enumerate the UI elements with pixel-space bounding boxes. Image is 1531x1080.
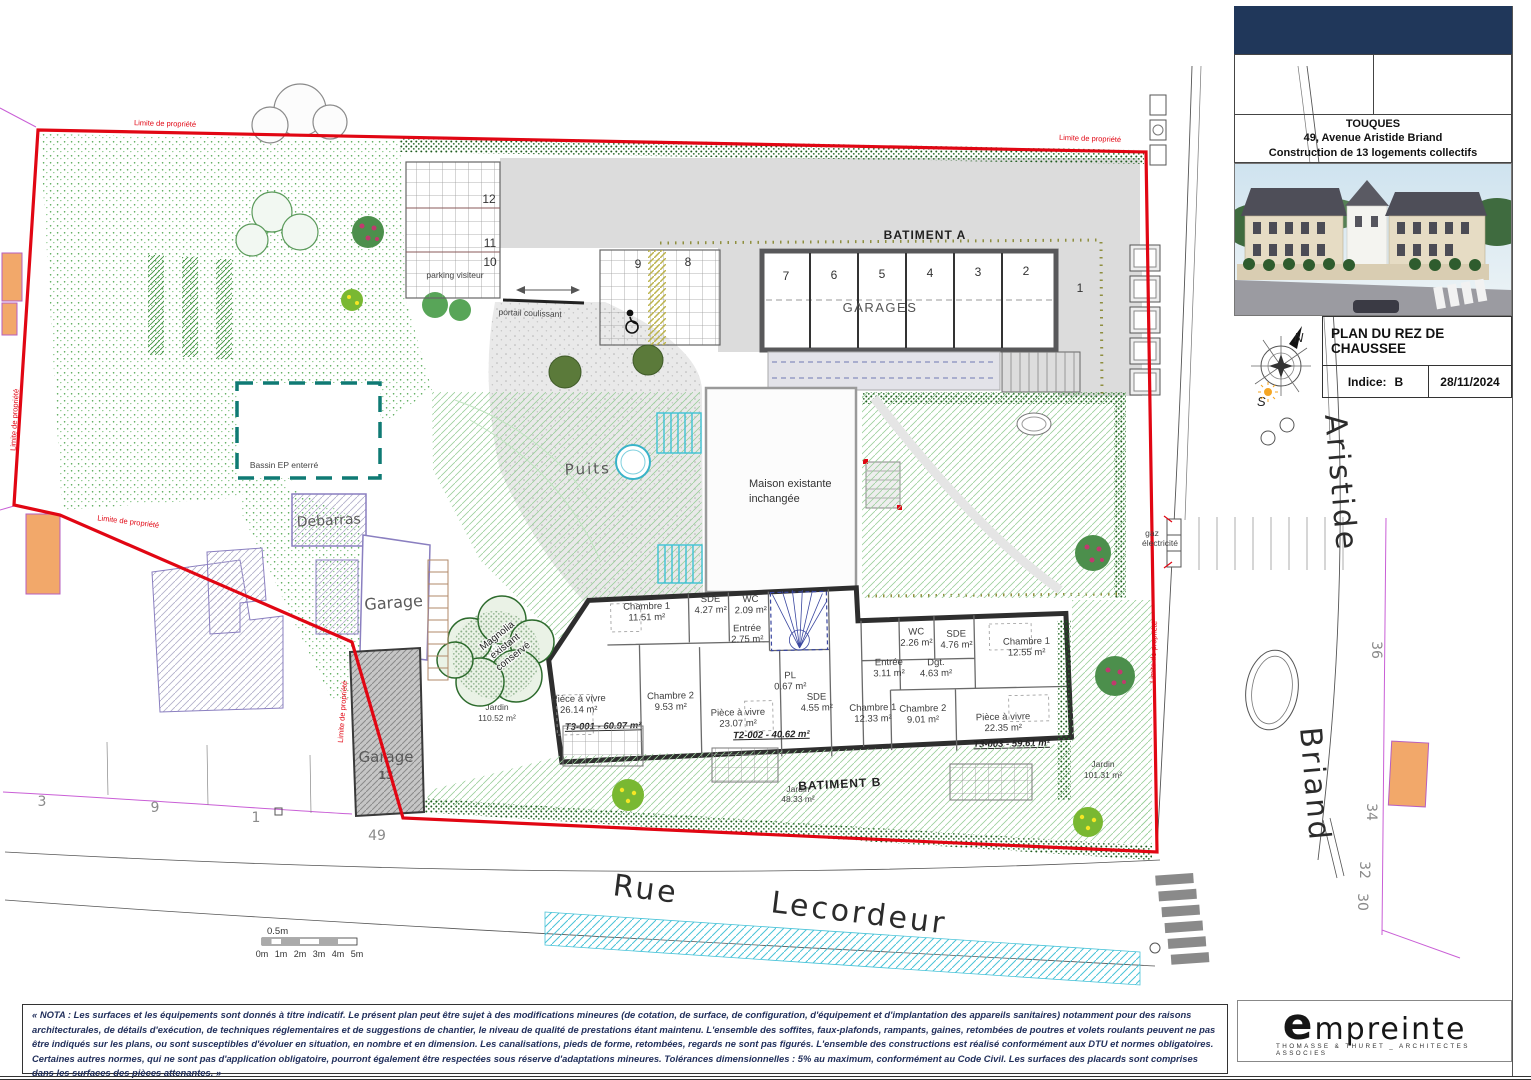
room-area: 2.75 m²	[731, 634, 763, 646]
room-area: 22.35 m²	[984, 722, 1022, 734]
curb-line	[5, 852, 1160, 871]
room-name: Entrée	[875, 657, 903, 669]
indice-value: B	[1395, 375, 1404, 389]
limite-label: Limite de propriété	[1148, 621, 1159, 683]
utility-cabinets	[1150, 95, 1166, 165]
compass-south-label: S	[1257, 394, 1266, 409]
house-number: 9	[151, 800, 160, 816]
titleblock-cells	[1234, 54, 1512, 115]
traffic-island	[1241, 647, 1304, 733]
flowering-tree	[1075, 535, 1111, 571]
room-name: Entrée	[733, 623, 761, 635]
room-area: 9.53 m²	[655, 701, 687, 713]
driveway	[718, 248, 760, 352]
house-number: 34	[1363, 803, 1379, 821]
room-area: 4.55 m²	[801, 702, 833, 714]
project-description: Construction de 13 logements collectifs	[1235, 146, 1511, 160]
garage-stall-number: 3	[975, 265, 982, 279]
garage-stall-number: 5	[879, 267, 886, 281]
room-area: 2.26 m²	[900, 637, 932, 649]
neighbour-building	[26, 514, 60, 594]
photo-rendering	[1234, 163, 1512, 316]
batiment-a-label: BATIMENT A	[884, 228, 967, 242]
scale-tick: 2m	[294, 949, 307, 959]
planting-row	[182, 257, 198, 357]
sheet-border-right	[1512, 6, 1513, 1076]
stairs-a	[1002, 352, 1080, 392]
scale-tick: 4m	[332, 949, 345, 959]
neighbour-building	[1388, 741, 1428, 807]
cadastre-line	[3, 792, 352, 814]
bush	[449, 299, 471, 321]
compass-rose: N S	[1238, 318, 1324, 414]
debarras-label: Debarras	[296, 511, 361, 530]
room-name: Chambre 2	[647, 690, 694, 702]
garage-building-white: Garage	[360, 535, 430, 660]
jardin-area: 48.33 m²	[781, 794, 815, 804]
planter-boxes	[1130, 245, 1160, 395]
yellow-bush	[341, 289, 363, 311]
photo-rendering-art	[1235, 164, 1511, 315]
tree	[633, 345, 663, 375]
parking-spot-number: 12	[482, 192, 496, 206]
flowering-tree	[1095, 656, 1135, 696]
neighbour-building	[2, 253, 22, 301]
jardin-label: Jardin	[1091, 759, 1114, 769]
gaz-label: gaz	[1145, 528, 1159, 538]
room-name: Pièce à vivre	[976, 711, 1031, 723]
yellow-bush	[612, 779, 644, 811]
house-number: 30	[1354, 893, 1370, 911]
garage-stall-number: 4	[927, 266, 934, 280]
room-area: 0.67 m²	[774, 681, 806, 693]
terrace-a	[768, 352, 1000, 390]
garage-stall-number: 2	[1023, 264, 1030, 278]
planting-row	[216, 259, 232, 359]
curb-line	[1157, 66, 1192, 848]
manhole	[1261, 431, 1275, 445]
apartment-id: T2-002 - 40.62 m²	[733, 729, 811, 742]
pedestrian-crossing	[1155, 872, 1209, 965]
room-name: Pièce à vivre	[551, 693, 606, 705]
bassin-ep: Bassin EP enterré	[237, 383, 380, 478]
room-area: 3.11 m²	[873, 668, 905, 680]
room-area: 9.01 m²	[907, 714, 939, 726]
logo-name: empreinte	[1283, 1005, 1467, 1045]
indice-label: Indice:	[1348, 375, 1387, 389]
scale-tick: 3m	[313, 949, 326, 959]
room-name: SDE	[701, 594, 721, 605]
driveway	[500, 158, 1140, 248]
logo-tagline: THOMASSE & THURET _ ARCHITECTES ASSOCIES	[1276, 1043, 1511, 1057]
house-number: 32	[1356, 861, 1372, 879]
sun-icon	[1264, 388, 1272, 396]
titleblock-banner	[1234, 6, 1512, 54]
room-area: 23.07 m²	[719, 718, 757, 730]
house-number: 36	[1368, 641, 1384, 659]
parking-visiteur-label: parking visiteur	[426, 270, 483, 280]
house-number: 1	[252, 810, 261, 826]
room-area: 4.76 m²	[940, 639, 972, 651]
scale-bar: 0.5m 0m 1m 2m 3m 4m 5m	[256, 926, 364, 959]
project-info: TOUQUES 49, Avenue Aristide Briand Const…	[1234, 115, 1512, 163]
parcel-ticks	[107, 742, 311, 813]
neighbour-annex	[316, 560, 358, 634]
maison-label-1: Maison existante	[749, 478, 832, 490]
parking-spot-number: 9	[635, 257, 642, 271]
room-area: 26.14 m²	[560, 704, 598, 716]
garage-stall-number: 6	[831, 268, 838, 282]
street-name-rue: Rue	[611, 868, 681, 911]
titleblock-cell-left	[1235, 55, 1374, 114]
curb-line	[1185, 66, 1201, 520]
room-name: Pièce à vivre	[711, 707, 766, 719]
room-name: WC	[908, 626, 924, 637]
cadastre-line	[1382, 518, 1460, 958]
parking-entry-block: 9 8	[600, 250, 720, 345]
garden-right	[862, 392, 1126, 598]
room-area: 12.33 m²	[854, 713, 892, 725]
architect-logo: empreinte THOMASSE & THURET _ ARCHITECTE…	[1237, 1000, 1512, 1062]
manhole	[1150, 943, 1160, 953]
debarras-building: Debarras	[292, 494, 366, 546]
terrace	[950, 764, 1032, 800]
utility-meters: gaz électricité	[1142, 516, 1181, 568]
room-area: 11.51 m²	[628, 612, 665, 624]
titleblock-meta: Indice: B 28/11/2024	[1322, 366, 1512, 398]
scale-half-label: 0.5m	[267, 926, 288, 937]
titleblock-cell-right	[1374, 55, 1512, 114]
parking-spot-number: 8	[685, 255, 692, 269]
yellow-bush	[1073, 807, 1103, 837]
project-address: 49, Avenue Aristide Briand	[1235, 131, 1511, 145]
tree	[549, 356, 581, 388]
neighbour-building	[2, 303, 17, 335]
street-name-aristide: Aristide	[1317, 413, 1364, 554]
room-name: SDE	[807, 691, 827, 702]
compass-north-label: N	[1294, 330, 1304, 345]
parking-spot-number: 1	[1077, 281, 1084, 295]
limite-label: Limite de propriété	[134, 118, 196, 129]
puits-label: Puits	[564, 459, 611, 479]
parking-bay-stripes	[1199, 517, 1343, 570]
bassin-label: Bassin EP enterré	[250, 460, 319, 470]
room-area: 4.27 m²	[695, 605, 727, 617]
parking-spot-number: 11	[484, 236, 497, 250]
nota-text: « NOTA : Les surfaces et les équipements…	[22, 1004, 1228, 1074]
parking-spot-number: 10	[483, 255, 497, 269]
sheet-border-bottom	[0, 1076, 1531, 1080]
maison-label-2: inchangée	[749, 493, 800, 505]
house-number: 3	[38, 794, 47, 810]
indice-cell: Indice: B	[1322, 366, 1428, 398]
room-area: 2.09 m²	[735, 605, 767, 617]
hedge	[1057, 620, 1071, 800]
scale-tick: 1m	[275, 949, 288, 959]
terrace	[712, 748, 778, 782]
planting-row	[148, 255, 164, 355]
garages-label: GARAGES	[843, 300, 918, 315]
terrace	[563, 726, 643, 766]
electricite-label: électricité	[1142, 538, 1178, 548]
room-name: WC	[742, 594, 758, 605]
flowering-tree	[352, 216, 384, 248]
limite-label: Limite de propriété	[1059, 133, 1121, 144]
date-cell: 28/11/2024	[1428, 366, 1512, 398]
room-name: PL	[784, 670, 796, 681]
room-name: SDE	[946, 629, 966, 640]
jardin-area: 110.52 m²	[478, 713, 516, 723]
garage-stall-number: 7	[783, 269, 790, 283]
room-name: Chambre 2	[899, 703, 946, 715]
jardin-area: 101.31 m²	[1084, 770, 1122, 780]
maison-existante: Maison existante inchangée	[706, 388, 856, 592]
manhole	[1280, 418, 1294, 432]
plan-title: PLAN DU REZ DE CHAUSSEE	[1322, 316, 1512, 366]
scale-tick: 5m	[351, 949, 364, 959]
scale-tick: 0m	[256, 949, 269, 959]
project-city: TOUQUES	[1235, 117, 1511, 131]
house-number: 49	[368, 828, 386, 844]
room-area: 12.55 m²	[1008, 647, 1046, 659]
limite-label: Limite de propriété	[97, 513, 160, 530]
room-name: Dgt.	[927, 657, 945, 668]
room-area: 4.63 m²	[920, 668, 952, 680]
parking-visiteur-block: 12 11 10 parking visiteur	[406, 162, 500, 298]
